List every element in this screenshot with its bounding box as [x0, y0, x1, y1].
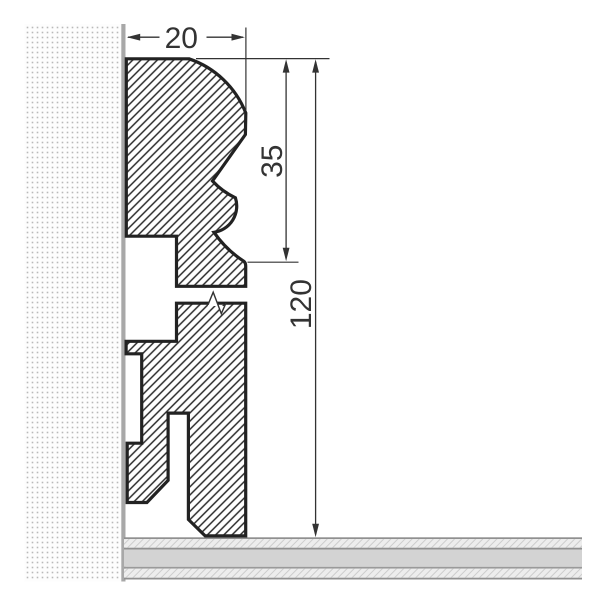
- svg-text:20: 20: [165, 22, 198, 55]
- svg-text:120: 120: [285, 279, 318, 329]
- svg-text:35: 35: [256, 145, 289, 178]
